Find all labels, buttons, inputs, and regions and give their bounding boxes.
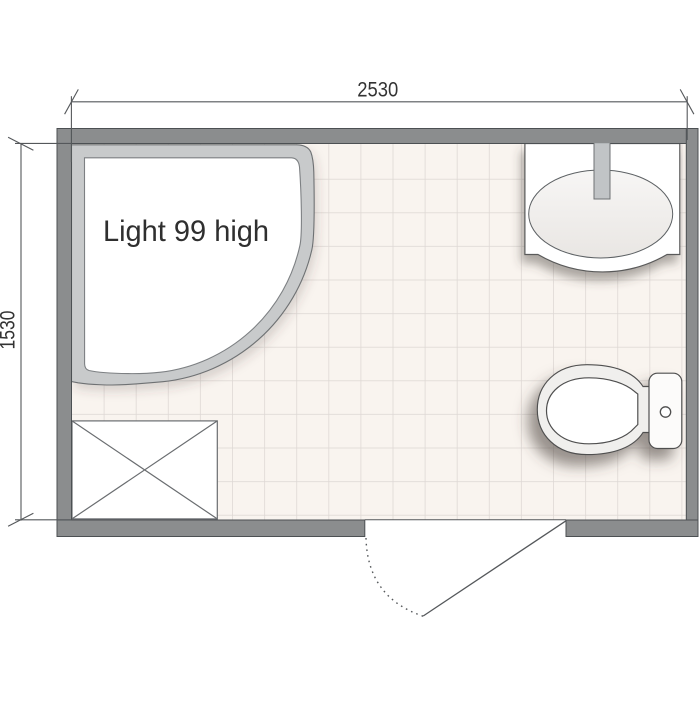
- svg-text:Light 99 high: Light 99 high: [103, 215, 269, 248]
- svg-text:1530: 1530: [0, 311, 20, 350]
- svg-text:2530: 2530: [357, 79, 398, 102]
